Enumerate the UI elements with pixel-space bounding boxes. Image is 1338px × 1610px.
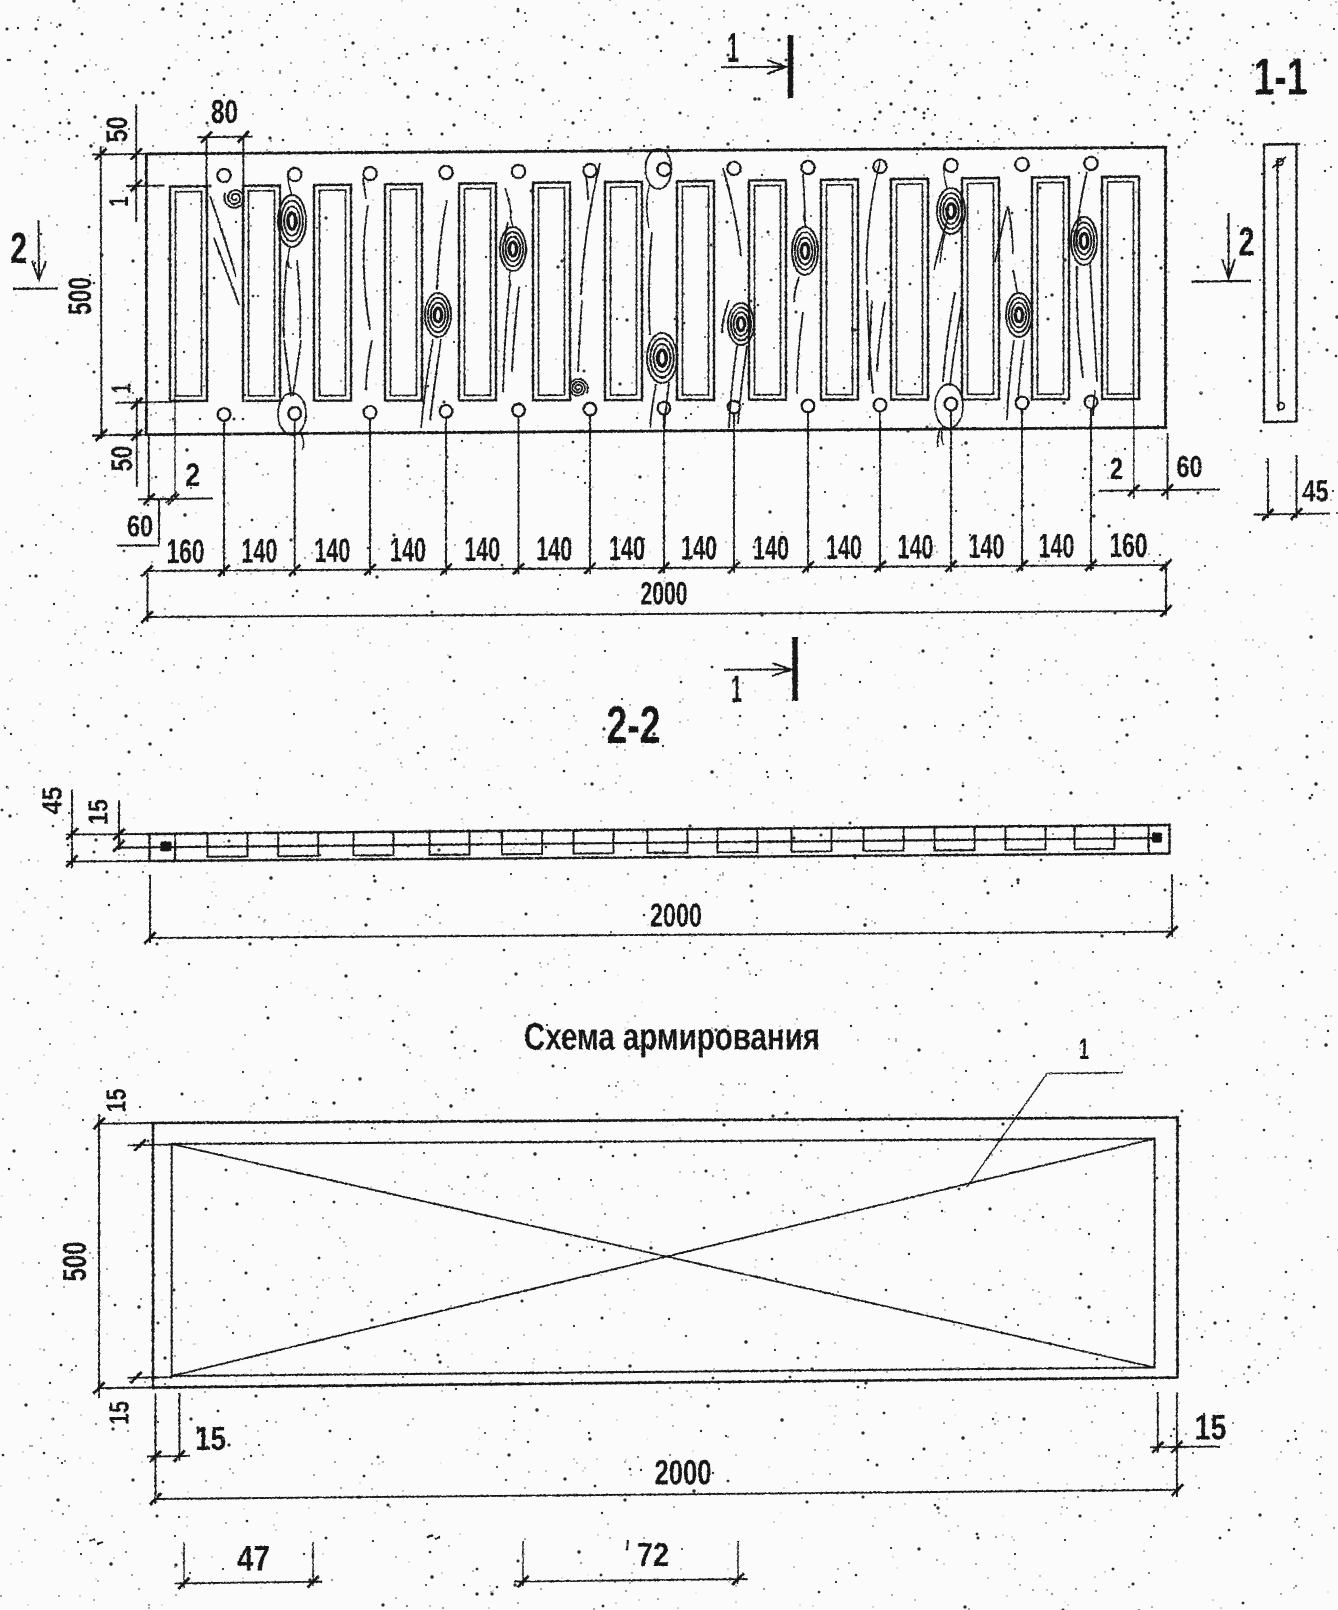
svg-text:2: 2: [1110, 451, 1123, 486]
svg-text:1: 1: [103, 197, 134, 207]
svg-text:2000: 2000: [655, 1454, 712, 1493]
svg-text:15: 15: [101, 1089, 132, 1113]
svg-text:2: 2: [10, 225, 27, 273]
svg-text:140: 140: [314, 532, 350, 570]
svg-text:1: 1: [727, 24, 739, 71]
svg-text:60: 60: [1177, 449, 1203, 484]
svg-text:500: 500: [62, 277, 98, 315]
svg-text:140: 140: [681, 530, 717, 568]
svg-text:500: 500: [57, 1242, 94, 1282]
svg-text:2: 2: [1239, 219, 1255, 265]
svg-text:140: 140: [1039, 528, 1075, 566]
svg-text:140: 140: [969, 528, 1005, 566]
svg-text:140: 140: [753, 529, 789, 567]
svg-text:140: 140: [464, 531, 500, 569]
svg-text:140: 140: [390, 532, 426, 570]
svg-text:60: 60: [127, 509, 153, 544]
svg-text:80: 80: [211, 94, 238, 131]
svg-text:1: 1: [106, 384, 137, 394]
svg-text:50: 50: [106, 446, 139, 472]
svg-text:45: 45: [37, 787, 68, 815]
svg-text:140: 140: [826, 529, 862, 567]
svg-text:160: 160: [167, 533, 205, 571]
svg-text:160: 160: [1110, 527, 1148, 565]
svg-text:140: 140: [241, 532, 277, 570]
svg-text:15: 15: [104, 1401, 135, 1425]
svg-text:45: 45: [1303, 474, 1329, 509]
svg-text:47: 47: [237, 1540, 270, 1579]
svg-text:1-1: 1-1: [1254, 48, 1308, 106]
svg-text:15: 15: [83, 799, 114, 825]
svg-text:2000: 2000: [650, 898, 702, 935]
svg-text:1: 1: [731, 668, 742, 710]
svg-text:2-2: 2-2: [607, 696, 661, 755]
svg-text:15: 15: [195, 1421, 226, 1458]
svg-text:Схема армирования: Схема армирования: [524, 1016, 820, 1058]
svg-text:2: 2: [185, 457, 200, 493]
svg-text:140: 140: [609, 530, 645, 568]
svg-text:15: 15: [1195, 1409, 1227, 1448]
svg-text:140: 140: [536, 531, 572, 569]
svg-text:140: 140: [898, 529, 934, 567]
svg-text:72: 72: [637, 1537, 669, 1574]
